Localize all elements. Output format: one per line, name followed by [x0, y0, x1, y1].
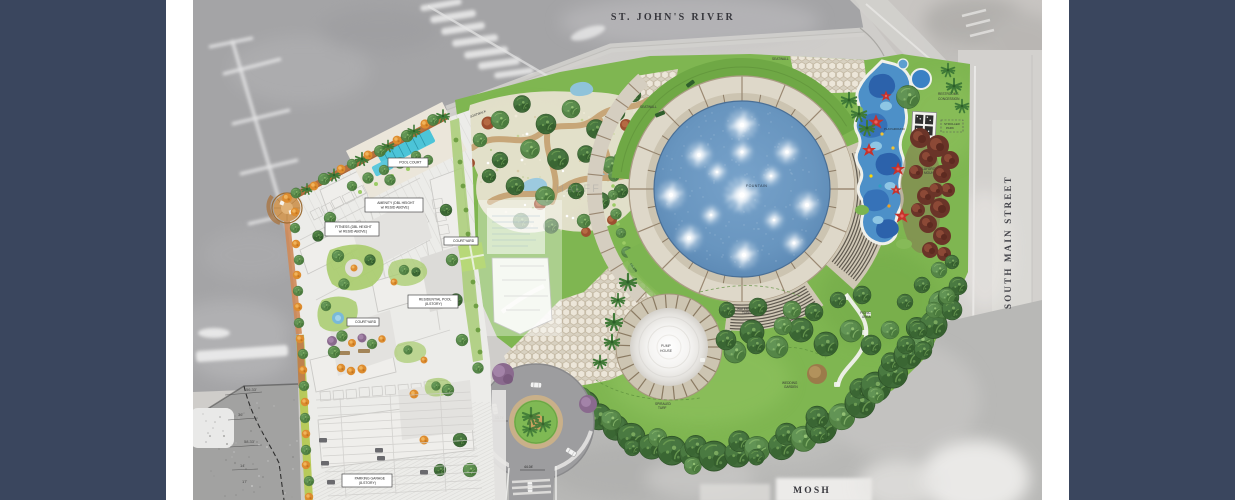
svg-text:w/ RESID ABOVE): w/ RESID ABOVE) — [339, 229, 367, 233]
svg-text:HALFF: HALFF — [556, 183, 601, 195]
svg-text:MOSH: MOSH — [793, 486, 831, 496]
svg-text:AREA: AREA — [862, 315, 872, 319]
svg-text:ST. JOHN'S RIVER: ST. JOHN'S RIVER — [611, 12, 735, 23]
svg-text:AMENITY (DBL HEIGHT: AMENITY (DBL HEIGHT — [377, 201, 414, 205]
svg-text:SOUTH MAIN STREET: SOUTH MAIN STREET — [1003, 175, 1013, 309]
svg-text:TURF: TURF — [742, 311, 751, 315]
svg-text:CONCESSION: CONCESSION — [938, 97, 960, 101]
svg-text:SEATWALL: SEATWALL — [640, 105, 657, 109]
svg-text:56.33': 56.33' — [246, 387, 257, 392]
svg-text:COURTYARD: COURTYARD — [453, 239, 475, 243]
svg-text:58.33': 58.33' — [244, 439, 255, 444]
svg-text:PARK: PARK — [946, 126, 954, 130]
svg-text:w/ RESID ABOVE): w/ RESID ABOVE) — [381, 205, 409, 209]
svg-text:HOUSE: HOUSE — [660, 349, 673, 353]
svg-text:GARDEN: GARDEN — [784, 385, 798, 389]
svg-text:FITNESS (DBL HEIGHT: FITNESS (DBL HEIGHT — [335, 225, 372, 229]
svg-text:PLAYGROUND: PLAYGROUND — [884, 127, 906, 131]
svg-text:SEATWALL: SEATWALL — [772, 57, 789, 61]
svg-text:36': 36' — [238, 412, 243, 417]
svg-text:PARKING GARAGE: PARKING GARAGE — [355, 477, 386, 481]
svg-text:TURF: TURF — [658, 406, 667, 410]
svg-text:44.04': 44.04' — [524, 465, 533, 469]
svg-text:RESIDENTIAL POOL: RESIDENTIAL POOL — [419, 298, 452, 302]
svg-text:PUMP: PUMP — [661, 344, 672, 348]
svg-text:FOUNTAIN: FOUNTAIN — [746, 184, 767, 188]
svg-text:(8-STORY): (8-STORY) — [359, 481, 376, 485]
svg-text:14': 14' — [240, 463, 245, 468]
svg-text:POOL COURT: POOL COURT — [399, 161, 421, 165]
svg-text:(8-STORY): (8-STORY) — [425, 302, 442, 306]
svg-text:17': 17' — [242, 479, 247, 484]
svg-text:COURTYARD: COURTYARD — [355, 320, 377, 324]
